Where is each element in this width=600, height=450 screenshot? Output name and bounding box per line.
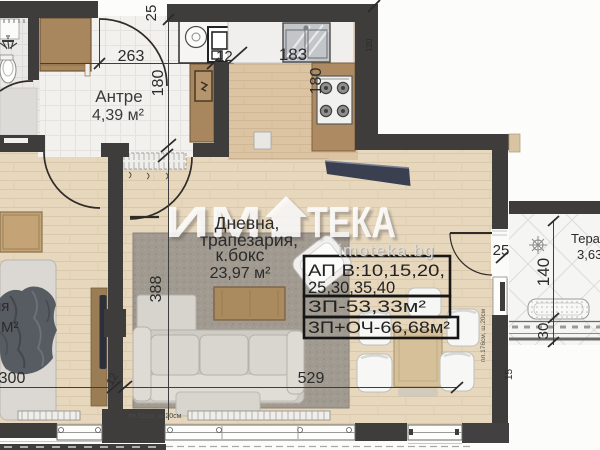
svg-text:25: 25 bbox=[493, 242, 510, 259]
svg-text:ЗП+ОЧ-66,68м²: ЗП+ОЧ-66,68м² bbox=[308, 319, 451, 337]
svg-text:М²: М² bbox=[1, 319, 19, 336]
svg-text:пл.51см, ш.20см: пл.51см, ш.20см bbox=[128, 413, 182, 420]
svg-text:300: 300 bbox=[0, 370, 25, 387]
svg-text:25: 25 bbox=[143, 5, 160, 22]
svg-text:ЗП-53,33м²: ЗП-53,33м² bbox=[308, 298, 427, 316]
svg-text:25,30,35,40: 25,30,35,40 bbox=[308, 279, 395, 297]
svg-text:Тераса: Тераса bbox=[571, 231, 600, 246]
svg-text:388: 388 bbox=[148, 276, 165, 303]
svg-text:3,63 м: 3,63 м bbox=[577, 247, 600, 262]
svg-text:к.бокс: к.бокс bbox=[216, 245, 265, 265]
svg-text:30: 30 bbox=[535, 323, 552, 340]
svg-text:140: 140 bbox=[534, 258, 553, 286]
svg-text:183: 183 bbox=[279, 45, 307, 64]
svg-text:180: 180 bbox=[308, 68, 325, 95]
svg-text:4,39 м²: 4,39 м² bbox=[92, 107, 145, 124]
svg-text:15: 15 bbox=[504, 368, 515, 380]
svg-text:180: 180 bbox=[150, 70, 167, 97]
svg-text:120: 120 bbox=[365, 38, 374, 52]
svg-text:Антре: Антре bbox=[95, 87, 142, 106]
svg-text:529: 529 bbox=[298, 370, 325, 387]
svg-text:ТЕКА: ТЕКА bbox=[307, 198, 396, 247]
svg-text:imoteka.bg: imoteka.bg bbox=[338, 241, 435, 260]
svg-text:23,97 м²: 23,97 м² bbox=[210, 265, 271, 282]
svg-text:12: 12 bbox=[216, 48, 233, 65]
svg-text:263: 263 bbox=[118, 48, 145, 65]
svg-text:АП В:10,15,20,: АП В:10,15,20, bbox=[308, 262, 445, 280]
svg-text:пл.176см, ш.20см: пл.176см, ш.20см bbox=[480, 308, 487, 362]
svg-text:ня: ня bbox=[0, 298, 9, 315]
